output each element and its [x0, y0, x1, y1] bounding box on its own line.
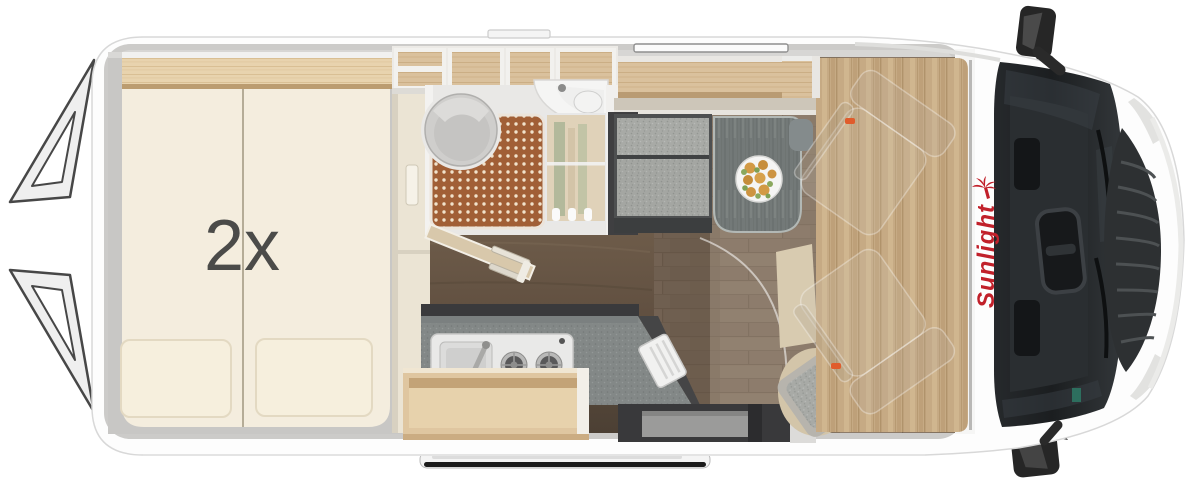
svg-text:2x: 2x — [204, 206, 280, 286]
svg-text:Sunlight: Sunlight — [973, 204, 1000, 308]
